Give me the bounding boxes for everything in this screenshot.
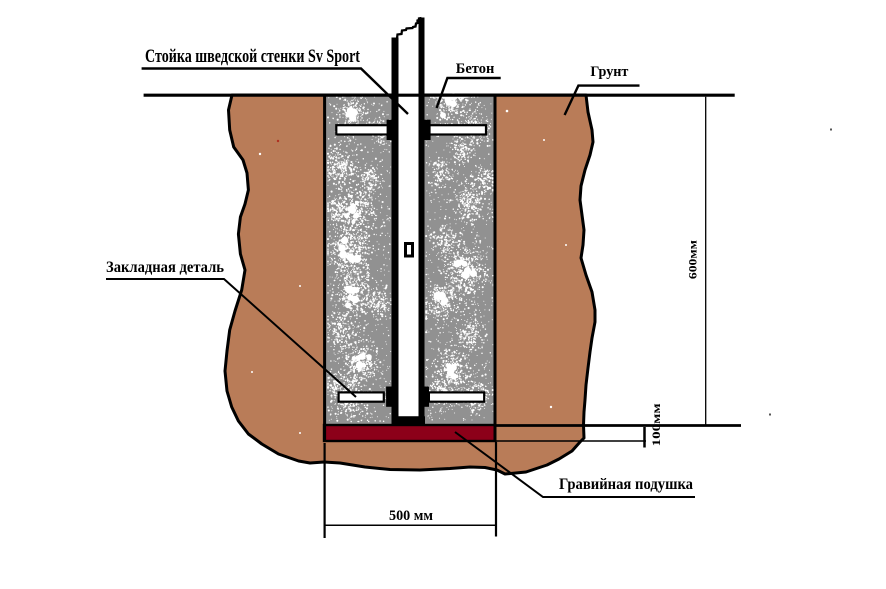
svg-text:Стойка шведской стенки Sv Spor: Стойка шведской стенки Sv Sport	[145, 46, 360, 67]
svg-text:Бетон: Бетон	[456, 61, 495, 77]
svg-text:500 мм: 500 мм	[389, 508, 433, 524]
svg-text:Гравийная подушка: Гравийная подушка	[559, 476, 693, 493]
svg-text:600мм: 600мм	[688, 240, 700, 279]
svg-text:100мм: 100мм	[651, 403, 663, 446]
svg-text:Грунт: Грунт	[590, 64, 629, 80]
svg-text:Закладная деталь: Закладная деталь	[106, 259, 224, 276]
